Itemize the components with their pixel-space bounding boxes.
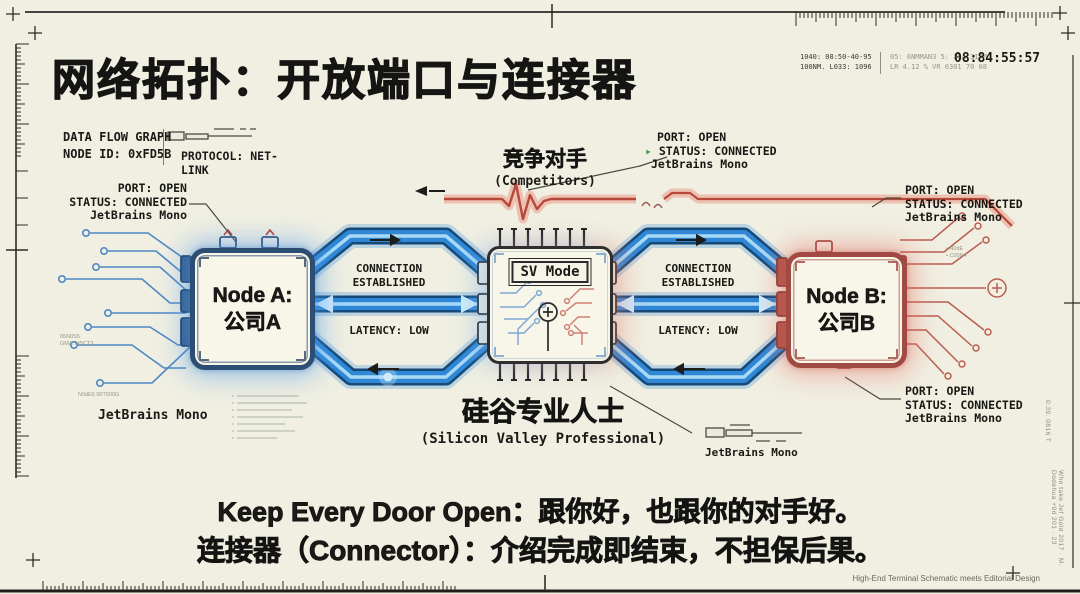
connection-word-1: CONNECTION xyxy=(633,262,763,276)
tagline-line-2: 连接器（Connector）：介绍完成即结束，不担保后果。 xyxy=(0,529,1080,569)
connection-word-2: ESTABLISHED xyxy=(324,276,454,290)
connection-status: STATUS: CONNECTED xyxy=(69,196,187,210)
credit-line: High-End Terminal Schematic meets Editor… xyxy=(853,574,1041,583)
competitors-caption: 竞争对手 (Competitors) xyxy=(455,143,635,189)
connection-status: STATUS: CONNECTED xyxy=(905,198,1023,212)
hub-caption: 硅谷专业人士 (Silicon Valley Professional) xyxy=(393,390,693,447)
micro-text-right: • N0dE• C00N4 xyxy=(946,246,967,260)
plus-port-icon xyxy=(539,303,557,351)
port-status: PORT: OPEN xyxy=(905,184,1023,198)
timestamp: 08:84:55:57 xyxy=(954,46,1038,72)
info-box-divider xyxy=(163,129,164,165)
info-box-protocol: PROTOCOL: NET-LINK xyxy=(181,149,303,177)
jetbrains-note-connector: JetBrains Mono xyxy=(705,446,798,459)
connection-status: STATUS: CONNECTED xyxy=(905,399,1023,413)
connection-word-2: ESTABLISHED xyxy=(633,276,763,290)
info-box-node-id: NODE ID: 0xFD5B xyxy=(63,147,171,161)
node-b-name: Node B: xyxy=(806,283,887,310)
port-label-competitors-link: PORT: OPEN ▸ STATUS: CONNECTED JetBrains… xyxy=(645,131,777,172)
micro-text-left: 65N0S5GMA 745CT3 xyxy=(60,334,93,347)
prompt-icon: ▸ xyxy=(645,144,652,158)
page-title: 网络拓扑：开放端口与连接器 xyxy=(52,46,637,108)
hub-chip: SV Mode xyxy=(487,246,613,364)
link-right-latency-label: LATENCY: LOW xyxy=(633,324,763,338)
node-a: Node A: 公司A xyxy=(190,248,315,370)
link-left-connection-label: CONNECTION ESTABLISHED xyxy=(324,262,454,289)
circuit-fan-left xyxy=(59,230,190,386)
port-status: PORT: OPEN xyxy=(905,385,1023,399)
node-b: Node B: 公司B xyxy=(786,252,907,368)
tagline-line-1: Keep Every Door Open：跟你好，也跟你的对手好。 xyxy=(0,490,1080,529)
telemetry-line-2: 100NM. L033: 1096 xyxy=(800,63,872,72)
timestamp-frame: 08:84:55:57 xyxy=(954,46,1038,72)
micro-list xyxy=(232,396,307,438)
cable-connector-icon-bottom xyxy=(706,425,802,441)
telemetry-line-1: 1040: 08:50-40-95 xyxy=(800,53,872,62)
port-status: PORT: OPEN xyxy=(69,182,187,196)
font-note: JetBrains Mono xyxy=(905,211,1023,225)
connection-word-1: CONNECTION xyxy=(324,262,454,276)
link-right-connection-label: CONNECTION ESTABLISHED xyxy=(633,262,763,289)
port-label-node-a-top: PORT: OPEN STATUS: CONNECTED JetBrains M… xyxy=(69,182,187,223)
micro-text-edge-right: 0:39. 0816 T xyxy=(1044,400,1051,442)
competitors-en: (Competitors) xyxy=(455,174,635,189)
font-note: JetBrains Mono xyxy=(645,158,777,172)
node-b-company: 公司B xyxy=(818,310,875,337)
telemetry-divider xyxy=(880,52,881,74)
schematic-poster: 网络拓扑：开放端口与连接器 1040: 08:50-40-95 100NM. L… xyxy=(0,0,1080,594)
circuit-fan-right xyxy=(900,213,1006,379)
hub-title-en: (Silicon Valley Professional) xyxy=(393,431,693,447)
sv-mode-badge: SV Mode xyxy=(511,261,588,283)
port-status: PORT: OPEN xyxy=(645,131,777,145)
jetbrains-note-left: JetBrains Mono xyxy=(98,408,208,423)
node-a-name: Node A: xyxy=(213,282,293,309)
font-note: JetBrains Mono xyxy=(905,412,1023,426)
info-box-title: DATA FLOW GRAPH xyxy=(63,130,171,144)
port-label-node-b-bottom: PORT: OPEN STATUS: CONNECTED JetBrains M… xyxy=(905,385,1023,426)
micro-text-bottom-left: N0dE5 00T500G xyxy=(78,391,119,400)
info-box: DATA FLOW GRAPH NODE ID: 0xFD5B PROTOCOL… xyxy=(45,126,303,168)
hub-title-cn: 硅谷专业人士 xyxy=(393,390,693,429)
port-label-node-b-top: PORT: OPEN STATUS: CONNECTED JetBrains M… xyxy=(905,184,1023,225)
node-a-company: 公司A xyxy=(224,309,281,336)
font-note: JetBrains Mono xyxy=(69,209,187,223)
competitors-cn: 竞争对手 xyxy=(455,143,635,173)
connection-status: STATUS: CONNECTED xyxy=(659,144,777,158)
link-left-latency-label: LATENCY: LOW xyxy=(324,324,454,338)
